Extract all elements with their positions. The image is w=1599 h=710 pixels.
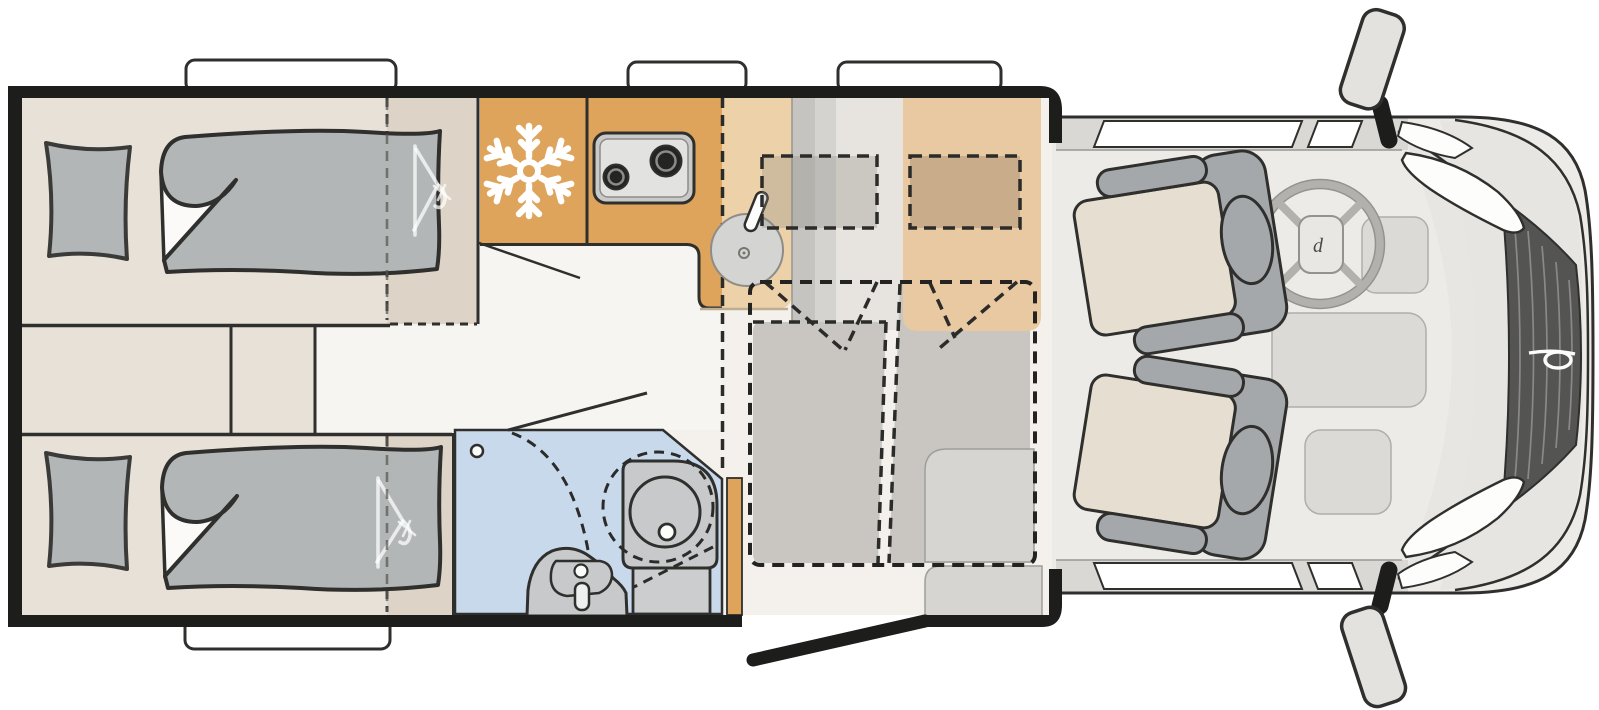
svg-text:d: d bbox=[1313, 235, 1324, 257]
